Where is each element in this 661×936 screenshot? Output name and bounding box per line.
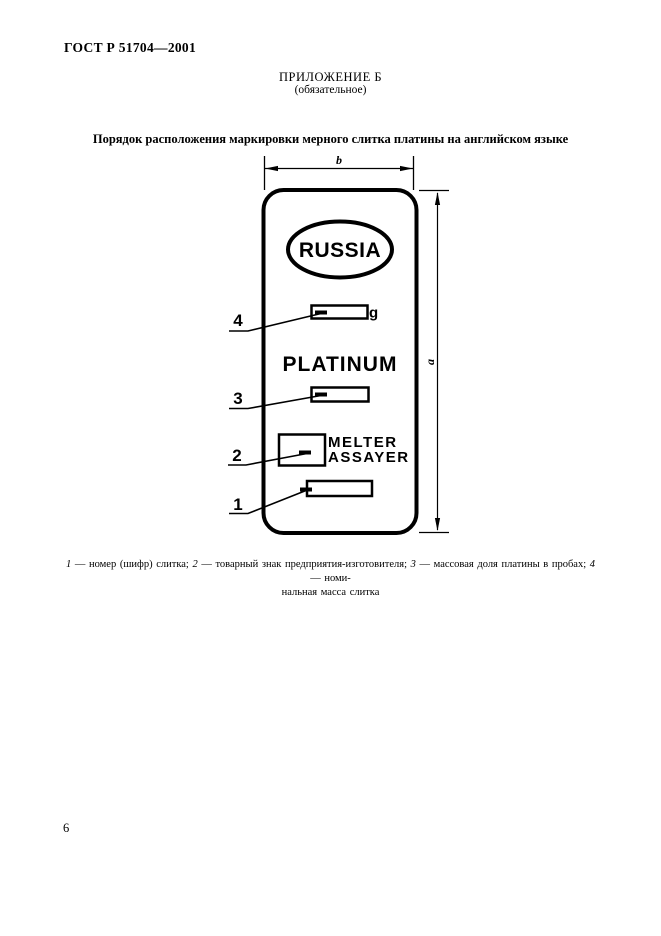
- figure-caption: 1 — номер (шифр) слитка; 2 — товарный зн…: [60, 558, 601, 600]
- russia-stamp-label: RUSSIA: [299, 239, 381, 262]
- height-dim-arrow-top: [435, 192, 440, 205]
- caption-item-2-text: — товарный знак предприятия-изготовителя…: [198, 559, 411, 570]
- width-dim-label: b: [336, 153, 342, 167]
- callout-number-1: 1: [233, 495, 242, 514]
- assayer-label: ASSAYER: [328, 449, 410, 466]
- metal-name-label: PLATINUM: [283, 353, 398, 376]
- caption-item-4-text: — номи-: [310, 573, 351, 584]
- document-page: ГОСТ Р 51704—2001 ПРИЛОЖЕНИЕ Б (обязател…: [0, 0, 661, 936]
- trademark-field: [279, 435, 325, 466]
- caption-item-3-text: — массовая доля платины в пробах;: [416, 559, 590, 570]
- ingot-number-field: [307, 481, 372, 496]
- caption-item-4-number: 4: [590, 559, 595, 570]
- mass-unit-label: g: [369, 305, 378, 322]
- width-dim-arrow-left: [265, 166, 278, 171]
- page-number: 6: [63, 821, 69, 836]
- width-dim-arrow-right: [400, 166, 413, 171]
- ingot-marking-diagram: b RUSSIA g PLATINUM MELTER ASSAYER a 4: [0, 0, 661, 936]
- height-dim-arrow-bottom: [435, 518, 440, 531]
- callout-number-4: 4: [233, 311, 243, 330]
- caption-line-2: нальная масса слитка: [282, 587, 380, 598]
- callout-number-2: 2: [232, 446, 241, 465]
- caption-item-1-text: — номер (шифр) слитка;: [71, 559, 192, 570]
- callout-number-3: 3: [233, 389, 242, 408]
- height-dim-label: a: [423, 359, 437, 365]
